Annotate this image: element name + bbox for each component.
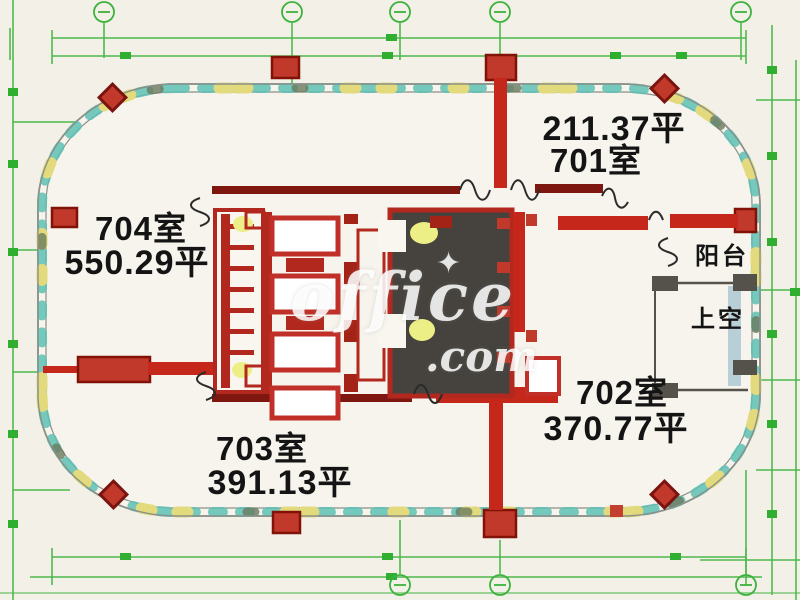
room-703-name: 703室 xyxy=(216,432,308,465)
room-703-area: 391.13平 xyxy=(208,466,353,500)
room-704-name: 704室 xyxy=(95,212,187,245)
stair-shaft xyxy=(378,210,512,396)
void-above-label: 上空 xyxy=(691,308,745,332)
room-702-area: 370.77平 xyxy=(544,412,689,446)
lamp-icon xyxy=(409,319,435,341)
room-701-name: 701室 xyxy=(550,144,642,177)
lamp-icon xyxy=(233,216,253,232)
floor-plan-drawing xyxy=(0,0,800,600)
balcony-anchor xyxy=(733,274,757,291)
balcony-anchor xyxy=(733,360,757,375)
balcony-label: 阳台 xyxy=(695,245,749,269)
balcony-anchor xyxy=(652,276,678,291)
lamp-icon xyxy=(232,362,252,378)
red-clip-marker xyxy=(610,505,623,517)
room-701-area: 211.37平 xyxy=(542,112,685,146)
room-704-area: 550.29平 xyxy=(65,246,210,280)
room-702-name: 702室 xyxy=(576,376,668,409)
floor-plan-canvas: 211.37平 701室 704室 550.29平 702室 370.77平 7… xyxy=(0,0,800,600)
toilet-block xyxy=(215,210,264,392)
